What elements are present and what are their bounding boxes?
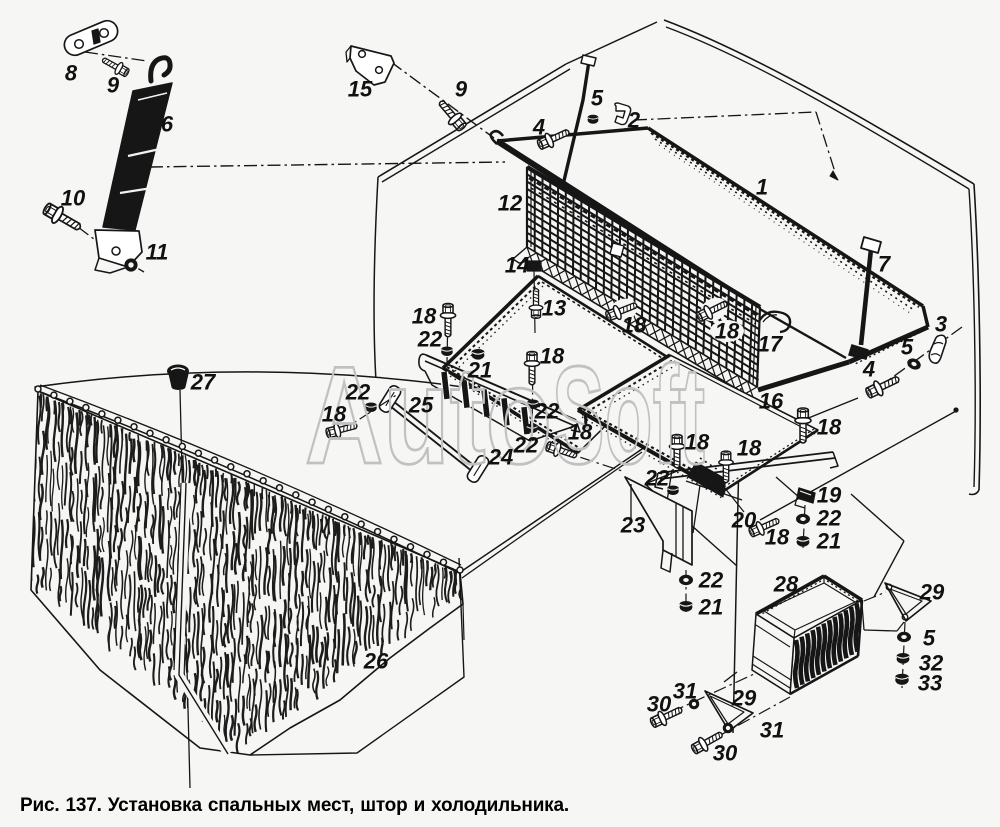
svg-text:17: 17 [758,332,784,357]
svg-text:6: 6 [161,112,174,137]
svg-text:9: 9 [455,77,468,102]
svg-text:3: 3 [935,312,947,337]
svg-text:30: 30 [647,692,672,717]
svg-text:22: 22 [534,399,560,424]
svg-text:5: 5 [591,86,604,111]
svg-text:29: 29 [731,686,757,711]
svg-text:15: 15 [348,77,373,102]
svg-text:22: 22 [816,506,842,531]
svg-text:22: 22 [644,466,670,491]
svg-text:18: 18 [685,430,710,455]
svg-text:4: 4 [862,357,875,382]
svg-text:18: 18 [322,402,347,427]
svg-text:26: 26 [363,649,389,674]
svg-text:18: 18 [540,344,565,369]
svg-text:20: 20 [731,508,757,533]
svg-text:21: 21 [816,529,841,554]
svg-text:14: 14 [505,253,529,278]
svg-text:22: 22 [345,380,371,405]
svg-text:10: 10 [61,186,86,211]
svg-text:13: 13 [542,296,566,321]
svg-text:18: 18 [765,525,790,550]
svg-text:24: 24 [488,445,513,470]
svg-text:9: 9 [107,73,120,98]
svg-text:16: 16 [759,389,784,414]
svg-text:31: 31 [673,679,697,704]
svg-text:23: 23 [620,513,645,538]
svg-text:18: 18 [715,319,740,344]
svg-text:22: 22 [417,327,443,352]
svg-text:21: 21 [698,595,723,620]
svg-text:2: 2 [627,108,641,133]
svg-text:11: 11 [146,240,169,265]
svg-text:28: 28 [773,572,799,597]
svg-text:5: 5 [923,626,936,651]
svg-text:1: 1 [756,175,768,200]
svg-text:12: 12 [498,191,523,216]
svg-text:7: 7 [878,252,892,277]
svg-text:22: 22 [513,433,539,458]
svg-text:18: 18 [817,415,842,440]
svg-text:27: 27 [190,370,217,395]
svg-text:21: 21 [467,358,492,383]
svg-text:18: 18 [412,304,437,329]
svg-text:4: 4 [532,115,545,140]
svg-text:18: 18 [737,436,762,461]
svg-text:18: 18 [622,313,647,338]
svg-text:31: 31 [760,718,784,743]
svg-text:8: 8 [65,61,78,86]
svg-text:29: 29 [919,580,945,605]
svg-text:25: 25 [408,393,434,418]
svg-text:22: 22 [698,568,724,593]
svg-text:19: 19 [817,483,842,508]
svg-text:33: 33 [918,671,942,696]
svg-text:Soft: Soft [552,338,705,493]
svg-text:5: 5 [901,335,914,360]
svg-text:18: 18 [568,420,593,445]
svg-text:30: 30 [713,741,738,766]
